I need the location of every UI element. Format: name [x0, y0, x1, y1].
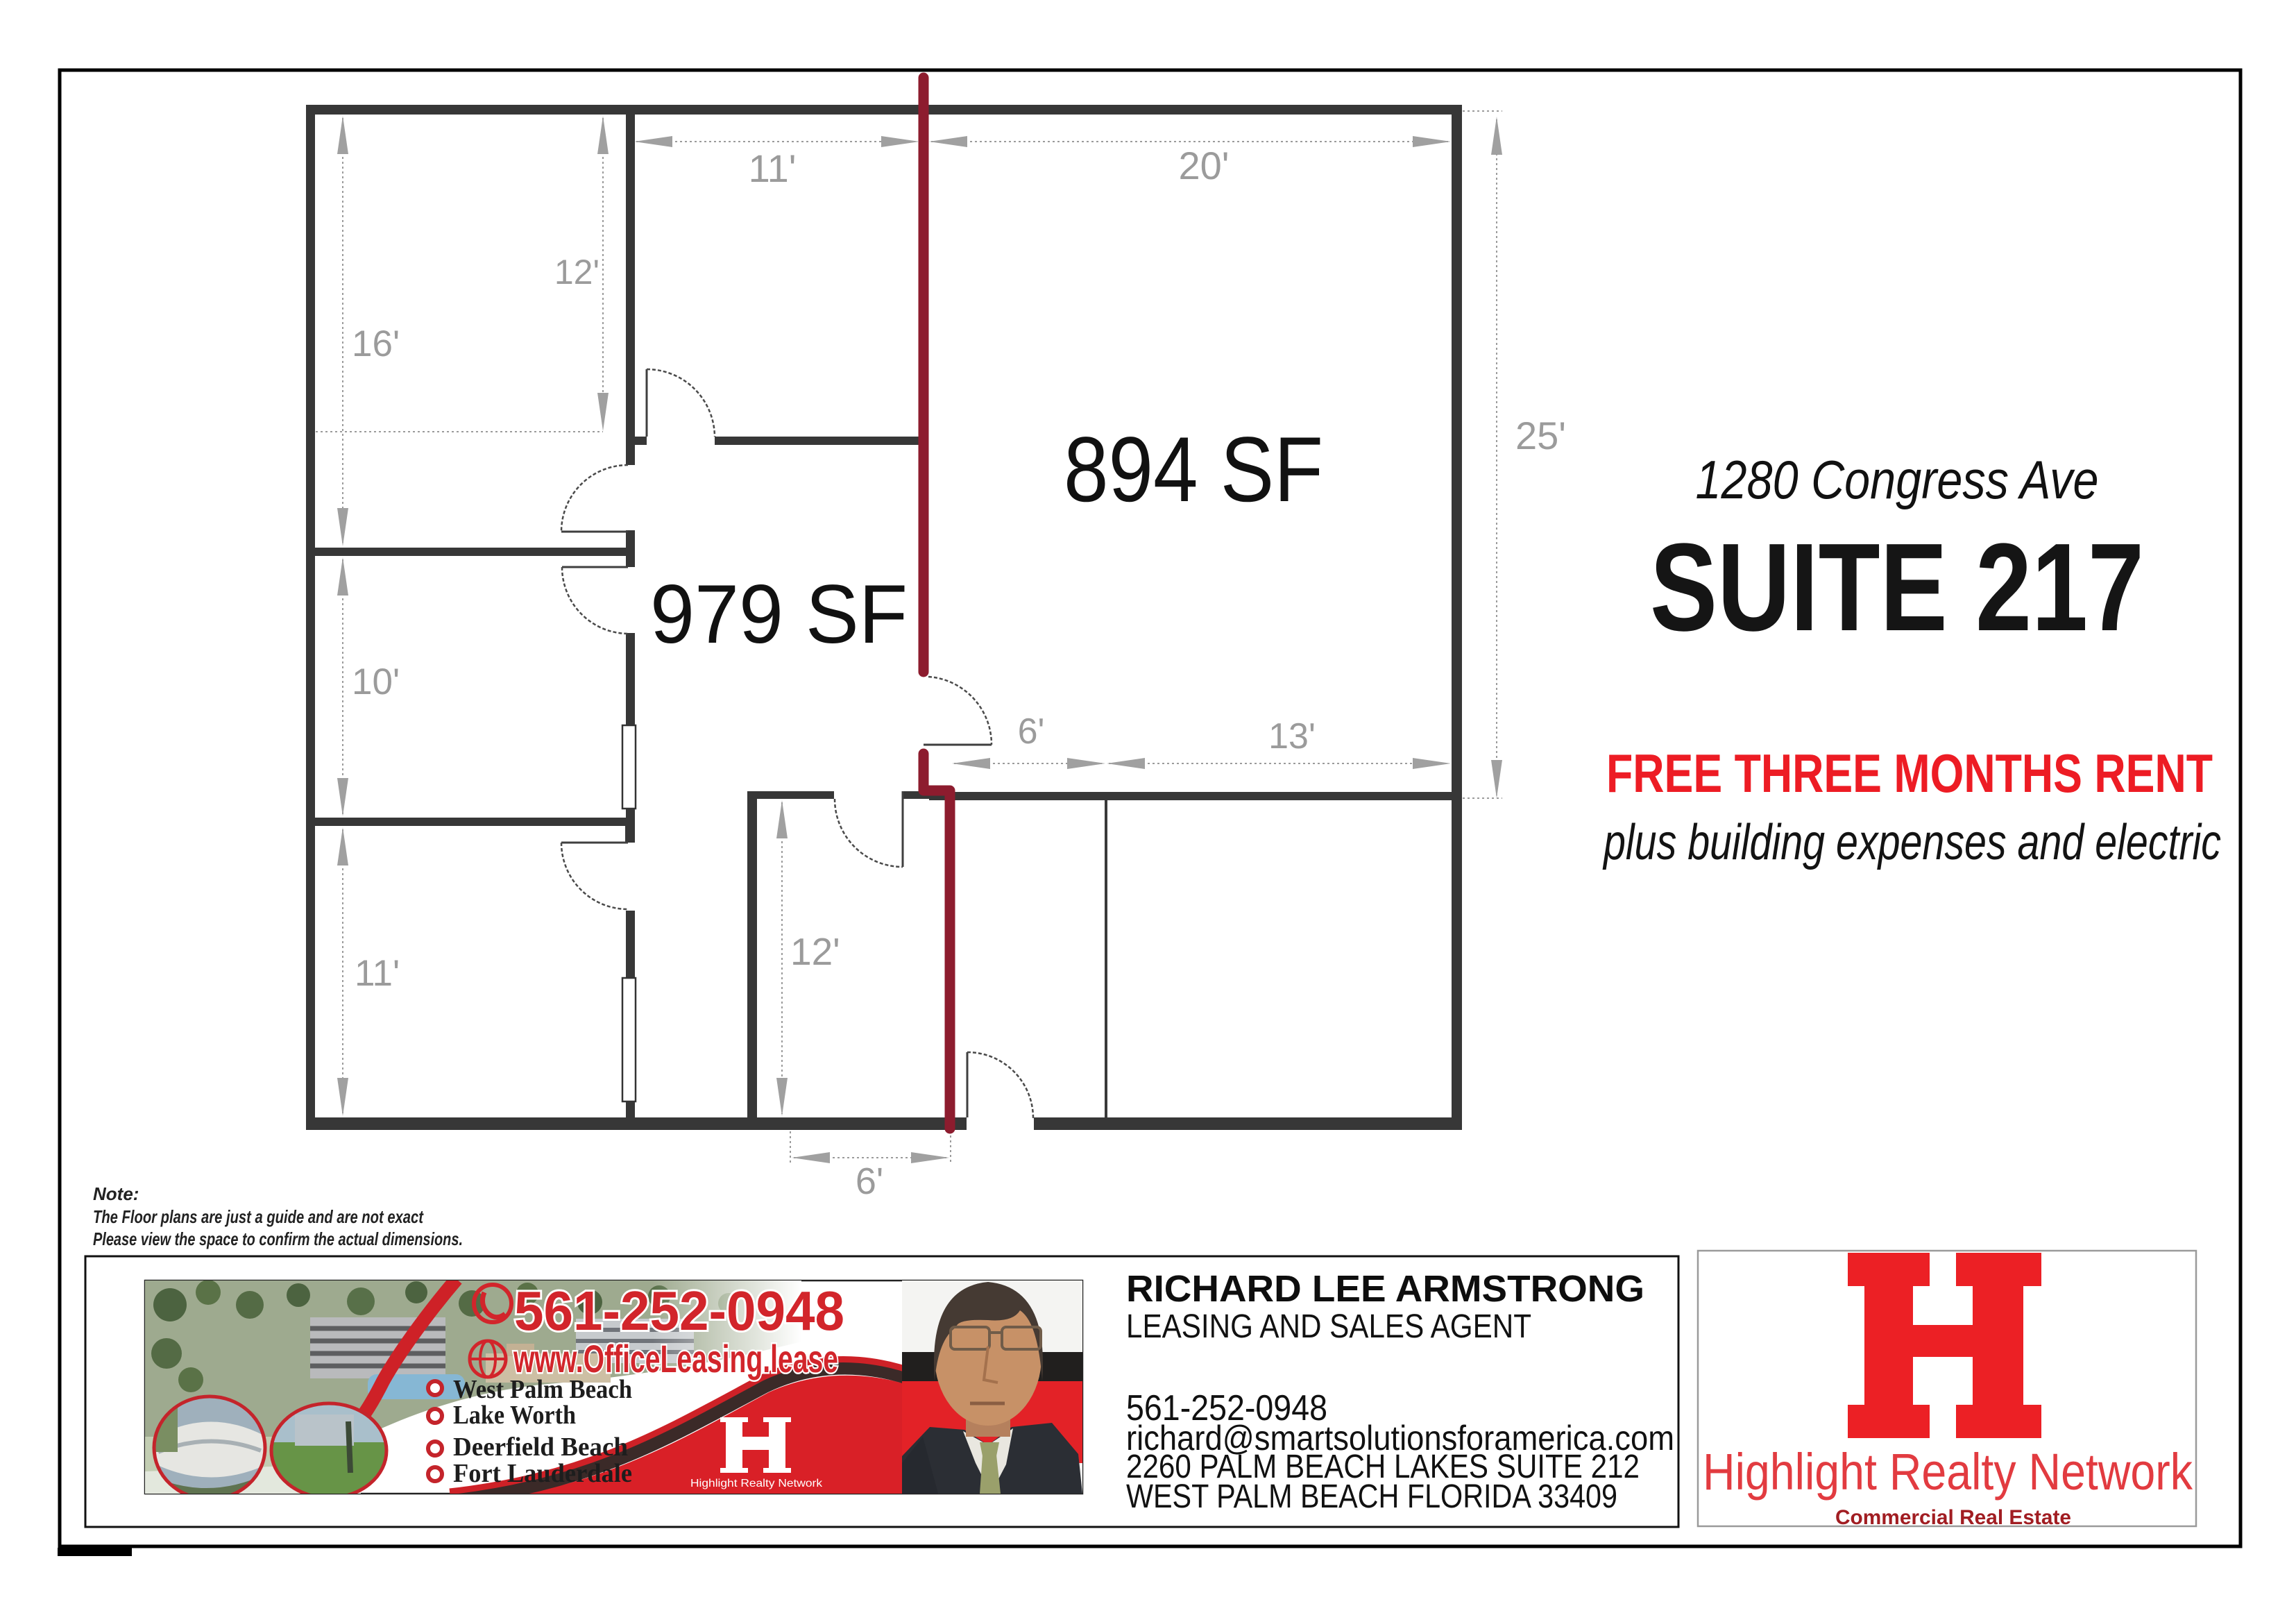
svg-text:561-252-0948: 561-252-0948 — [514, 1280, 844, 1342]
svg-text:West Palm Beach: West Palm Beach — [453, 1375, 632, 1404]
svg-text:Deerfield Beach: Deerfield Beach — [453, 1433, 628, 1462]
svg-text:979 SF: 979 SF — [650, 568, 908, 661]
svg-text:Please view the space to confi: Please view the space to confirm the act… — [93, 1228, 463, 1249]
svg-text:WEST PALM BEACH FLORIDA 33409: WEST PALM BEACH FLORIDA 33409 — [1126, 1478, 1617, 1515]
svg-text:12': 12' — [554, 253, 599, 292]
svg-text:Commercial Real Estate: Commercial Real Estate — [1835, 1506, 2071, 1529]
svg-text:Highlight Realty Network: Highlight Realty Network — [690, 1478, 823, 1489]
svg-text:SUITE 217: SUITE 217 — [1650, 518, 2144, 657]
svg-text:LEASING AND SALES AGENT: LEASING AND SALES AGENT — [1126, 1308, 1531, 1345]
svg-text:13': 13' — [1268, 716, 1316, 757]
svg-text:1280 Congress Ave: 1280 Congress Ave — [1696, 449, 2099, 510]
svg-text:plus building expenses and ele: plus building expenses and electric — [1602, 815, 2221, 870]
svg-text:Note:: Note: — [93, 1183, 139, 1204]
svg-text:12': 12' — [790, 930, 840, 973]
svg-text:www.OfficeLeasing.lease: www.OfficeLeasing.lease — [513, 1337, 838, 1380]
svg-text:11': 11' — [355, 953, 400, 994]
svg-text:894 SF: 894 SF — [1064, 419, 1323, 521]
svg-text:20': 20' — [1179, 144, 1230, 187]
svg-text:11': 11' — [749, 146, 797, 190]
svg-text:10': 10' — [352, 661, 400, 702]
svg-text:The Floor plans are just a gui: The Floor plans are just a guide and are… — [93, 1206, 424, 1227]
svg-text:16': 16' — [352, 323, 400, 364]
svg-text:FREE THREE MONTHS RENT: FREE THREE MONTHS RENT — [1606, 743, 2213, 804]
svg-text:RICHARD LEE ARMSTRONG: RICHARD LEE ARMSTRONG — [1126, 1268, 1644, 1310]
svg-text:6': 6' — [856, 1160, 883, 1202]
svg-text:6': 6' — [1018, 711, 1045, 752]
svg-text:25': 25' — [1515, 414, 1566, 457]
svg-text:Lake Worth: Lake Worth — [453, 1401, 576, 1430]
svg-text:Highlight Realty Network: Highlight Realty Network — [1703, 1443, 2193, 1501]
svg-text:Fort Lauderdale: Fort Lauderdale — [453, 1459, 632, 1488]
